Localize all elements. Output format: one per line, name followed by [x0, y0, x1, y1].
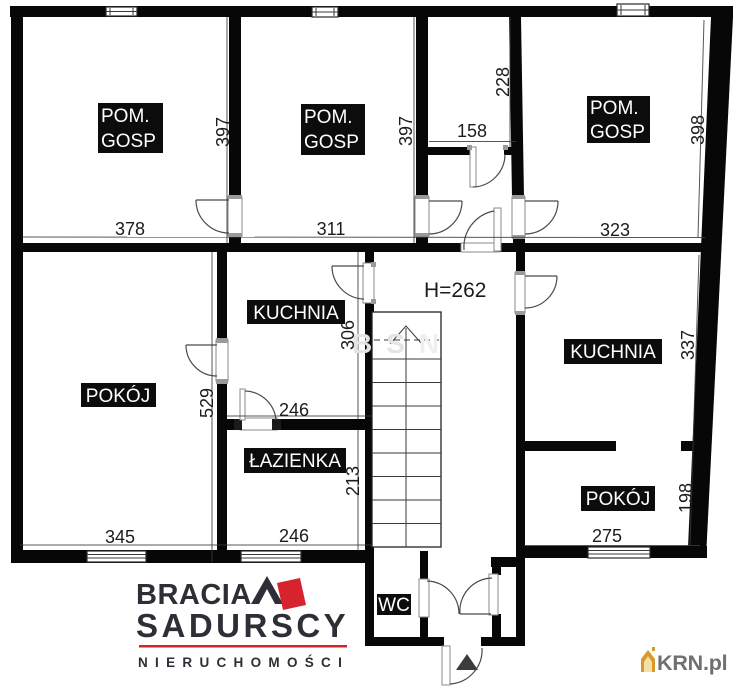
- svg-text:GOSP: GOSP: [101, 131, 156, 152]
- svg-text:KUCHNIA: KUCHNIA: [253, 303, 339, 324]
- svg-text:306: 306: [338, 320, 358, 350]
- svg-text:311: 311: [317, 219, 346, 239]
- svg-text:POM.: POM.: [590, 98, 639, 119]
- svg-text:WC: WC: [378, 595, 410, 616]
- svg-text:POKÓJ: POKÓJ: [86, 385, 150, 407]
- svg-text:228: 228: [493, 67, 513, 97]
- svg-text:337: 337: [678, 330, 698, 360]
- svg-text:BSN: BSN: [352, 328, 453, 359]
- svg-text:246: 246: [279, 526, 309, 546]
- svg-text:345: 345: [105, 527, 135, 547]
- svg-text:KUCHNIA: KUCHNIA: [570, 342, 656, 363]
- svg-text:158: 158: [457, 121, 487, 141]
- svg-text:398: 398: [688, 115, 708, 145]
- svg-text:397: 397: [396, 116, 416, 146]
- svg-text:246: 246: [279, 400, 309, 420]
- svg-text:POM.: POM.: [304, 107, 353, 128]
- svg-text:323: 323: [600, 220, 630, 240]
- svg-text:H=262: H=262: [424, 279, 486, 302]
- svg-text:198: 198: [676, 483, 696, 513]
- svg-text:378: 378: [115, 219, 145, 239]
- svg-text:275: 275: [592, 526, 622, 546]
- svg-text:397: 397: [213, 117, 233, 147]
- svg-text:SADURSCY: SADURSCY: [136, 607, 349, 644]
- svg-text:KRN.pl: KRN.pl: [657, 651, 727, 675]
- svg-text:ŁAZIENKA: ŁAZIENKA: [249, 451, 341, 472]
- svg-text:529: 529: [197, 388, 217, 418]
- svg-text:POM.: POM.: [101, 106, 150, 127]
- svg-text:POKÓJ: POKÓJ: [586, 488, 650, 510]
- svg-text:NIERUCHOMOŚCI: NIERUCHOMOŚCI: [138, 655, 349, 670]
- svg-text:GOSP: GOSP: [304, 132, 359, 153]
- svg-text:GOSP: GOSP: [590, 122, 645, 143]
